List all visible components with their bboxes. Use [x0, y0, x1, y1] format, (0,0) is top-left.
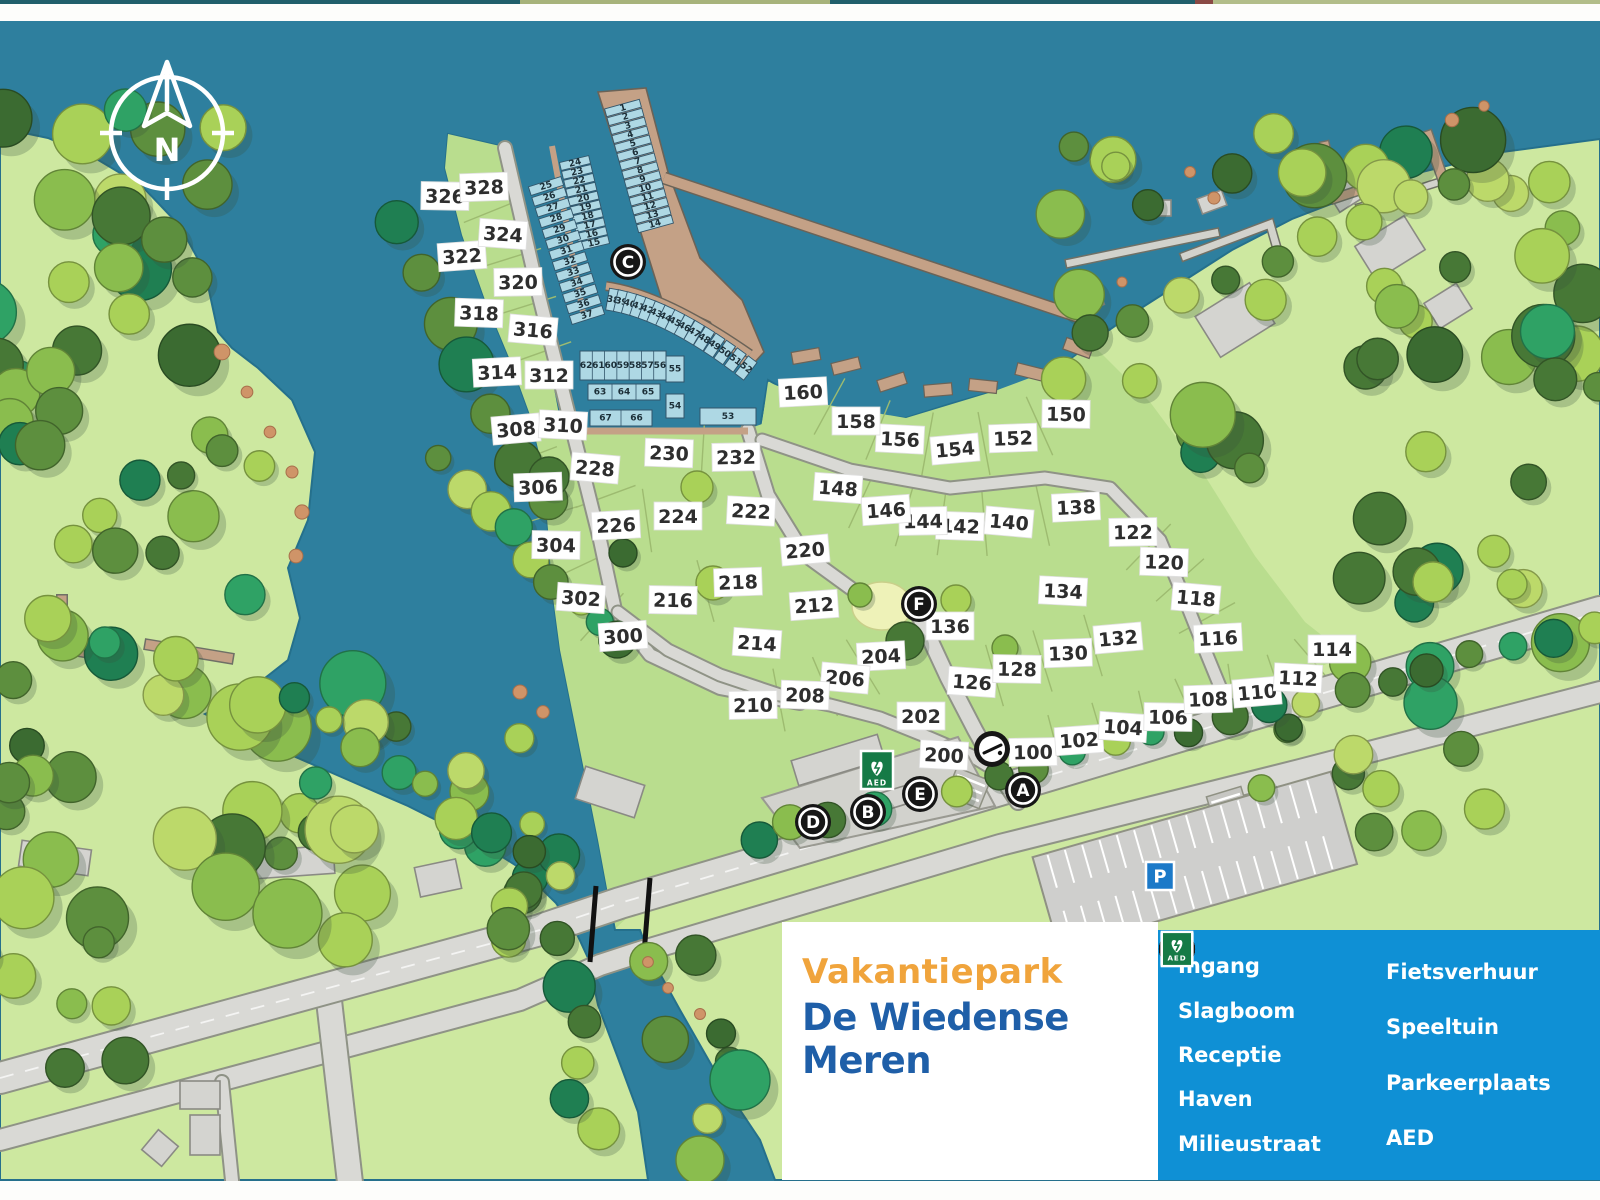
- tree: [1521, 305, 1575, 359]
- tree: [158, 324, 220, 386]
- plot-label-126: 126: [947, 666, 997, 697]
- svg-text:64: 64: [618, 388, 631, 398]
- tree: [192, 853, 259, 920]
- shore-bush: [694, 1008, 705, 1019]
- tree: [1402, 811, 1442, 851]
- tree: [435, 797, 477, 839]
- legend-label: Parkeerplaats: [1386, 1071, 1551, 1095]
- tree: [142, 217, 187, 262]
- svg-text:206: 206: [824, 666, 865, 691]
- plot-label-120: 120: [1140, 547, 1189, 577]
- svg-text:140: 140: [988, 510, 1029, 535]
- plot-label-324: 324: [478, 218, 528, 249]
- svg-text:128: 128: [997, 659, 1037, 682]
- svg-text:306: 306: [518, 476, 558, 499]
- tree: [27, 347, 75, 395]
- tree: [403, 254, 440, 291]
- svg-text:108: 108: [1188, 688, 1228, 711]
- svg-text:160: 160: [783, 381, 824, 405]
- shore-bush: [1208, 192, 1220, 204]
- tree: [1333, 552, 1385, 604]
- tree: [1355, 813, 1393, 851]
- building: [180, 1081, 220, 1109]
- svg-text:322: 322: [442, 245, 483, 270]
- svg-text:146: 146: [866, 499, 907, 524]
- svg-text:324: 324: [482, 223, 523, 248]
- tree: [1213, 154, 1252, 193]
- shore-bush: [295, 505, 309, 519]
- tree: [710, 1050, 770, 1110]
- plot-label-328: 328: [460, 172, 509, 202]
- tree: [1235, 453, 1265, 483]
- svg-text:138: 138: [1056, 496, 1097, 520]
- plot-label-128: 128: [993, 655, 1041, 684]
- plot-label-312: 312: [525, 361, 573, 389]
- tree: [941, 585, 971, 615]
- tree: [1406, 432, 1446, 472]
- p-sign: P: [1146, 862, 1174, 890]
- tree: [146, 536, 179, 569]
- svg-text:220: 220: [784, 538, 825, 563]
- svg-text:320: 320: [498, 272, 538, 295]
- marker-E: E: [902, 776, 938, 812]
- plot-label-122: 122: [1109, 518, 1157, 547]
- plot-label-212: 212: [789, 589, 839, 620]
- legend-panel: AIngangSlagboomBReceptieCHavenDMilieustr…: [1158, 930, 1600, 1180]
- tree: [25, 595, 71, 641]
- tree: [1036, 190, 1084, 238]
- tree: [1164, 278, 1200, 314]
- svg-text:308: 308: [495, 417, 536, 442]
- shore-bush: [214, 344, 230, 360]
- title-line2: De Wiedense Meren: [802, 996, 1158, 1082]
- svg-text:228: 228: [574, 456, 615, 481]
- tree: [676, 1136, 724, 1184]
- tree: [0, 662, 32, 699]
- title-line1: Vakantiepark: [802, 952, 1158, 992]
- legend-label: Milieustraat: [1178, 1132, 1321, 1156]
- tree: [448, 753, 484, 789]
- tree: [1357, 338, 1398, 379]
- compass-north-label: N: [154, 131, 181, 169]
- legend-label: Slagboom: [1178, 999, 1295, 1023]
- svg-text:150: 150: [1046, 404, 1086, 427]
- legend-item-parkeerplaats: PParkeerplaats: [1386, 1071, 1594, 1095]
- tree: [375, 201, 418, 244]
- tree: [225, 575, 265, 615]
- tree: [46, 1049, 85, 1088]
- svg-text:210: 210: [733, 695, 773, 718]
- svg-text:100: 100: [1013, 742, 1053, 765]
- shore-bush: [264, 426, 276, 438]
- svg-text:312: 312: [529, 365, 569, 387]
- legend-column-2: EFietsverhuurFSpeeltuinPParkeerplaatsAED…: [1386, 944, 1594, 1166]
- svg-text:216: 216: [653, 590, 693, 613]
- tree: [546, 862, 574, 890]
- tree: [102, 1037, 149, 1084]
- building: [190, 1115, 220, 1155]
- berth-box: 62616059585756: [580, 351, 666, 380]
- map-bottom-margin: [0, 1181, 1600, 1200]
- tree: [168, 491, 219, 542]
- plot-label-320: 320: [494, 268, 542, 297]
- svg-text:156: 156: [880, 428, 921, 452]
- plot-label-118: 118: [1171, 582, 1221, 614]
- tree: [93, 528, 138, 573]
- tree: [520, 812, 544, 836]
- shore-bush: [286, 466, 298, 478]
- svg-text:57: 57: [641, 361, 654, 371]
- legend-item-milieustraat: DMilieustraat: [1178, 1132, 1386, 1156]
- tree: [505, 724, 534, 753]
- svg-text:122: 122: [1113, 522, 1153, 545]
- tree: [330, 805, 378, 853]
- plot-label-228: 228: [570, 452, 620, 484]
- berth-box: 6766: [590, 410, 652, 426]
- plot-label-226: 226: [591, 510, 640, 540]
- svg-text:304: 304: [536, 535, 576, 558]
- tree: [1133, 190, 1164, 221]
- tree: [1353, 492, 1405, 544]
- svg-text:214: 214: [736, 632, 777, 657]
- svg-text:224: 224: [658, 506, 698, 528]
- legend-item-receptie: BReceptie: [1178, 1043, 1386, 1067]
- legend-item-speeltuin: FSpeeltuin: [1386, 1015, 1594, 1039]
- tree: [83, 927, 114, 958]
- plot-label-210: 210: [729, 691, 777, 720]
- svg-text:302: 302: [560, 587, 601, 612]
- svg-text:152: 152: [993, 427, 1033, 450]
- svg-text:C: C: [622, 253, 634, 273]
- svg-text:AED: AED: [867, 779, 887, 788]
- svg-text:104: 104: [1102, 716, 1143, 741]
- marker-D: D: [795, 804, 831, 840]
- tree: [341, 728, 380, 767]
- svg-text:D: D: [806, 813, 820, 833]
- tree: [95, 243, 143, 291]
- tree: [426, 445, 451, 470]
- plot-label-146: 146: [861, 494, 911, 525]
- plot-label-152: 152: [989, 423, 1038, 453]
- plot-label-214: 214: [732, 627, 782, 658]
- tree: [1123, 364, 1157, 398]
- plot-label-138: 138: [1051, 492, 1100, 522]
- plot-label-302: 302: [556, 582, 606, 613]
- shore-bush: [1117, 277, 1127, 287]
- plot-label-104: 104: [1098, 711, 1148, 742]
- tree: [1334, 735, 1372, 773]
- svg-text:218: 218: [718, 571, 758, 594]
- svg-text:63: 63: [594, 388, 607, 398]
- tree: [1335, 673, 1370, 708]
- tree: [1059, 132, 1088, 161]
- shore-bush: [1185, 167, 1196, 178]
- svg-text:326: 326: [425, 186, 465, 209]
- berth-box: 54: [666, 394, 684, 418]
- plot-label-200: 200: [919, 740, 968, 770]
- tree: [49, 262, 90, 303]
- plot-label-216: 216: [649, 586, 697, 615]
- tree: [244, 451, 275, 482]
- tree: [495, 509, 532, 546]
- small-dock: [924, 383, 953, 397]
- shore-bush: [241, 386, 253, 398]
- svg-text:314: 314: [477, 361, 518, 385]
- tree: [1212, 266, 1240, 294]
- plot-label-218: 218: [714, 567, 763, 597]
- plot-label-108: 108: [1184, 684, 1233, 714]
- tree: [568, 1005, 600, 1037]
- tree: [34, 170, 94, 230]
- marker-F: F: [901, 586, 937, 622]
- small-dock: [968, 379, 997, 394]
- marker-B: B: [850, 794, 886, 830]
- shore-bush: [1479, 101, 1489, 111]
- tree: [1478, 535, 1510, 567]
- tree: [1278, 149, 1325, 196]
- svg-text:130: 130: [1048, 642, 1088, 665]
- tree: [676, 935, 716, 975]
- tree: [92, 987, 130, 1025]
- tree: [513, 836, 545, 868]
- svg-text:53: 53: [722, 412, 735, 422]
- plot-label-202: 202: [897, 702, 945, 730]
- vacation-park-map: { "title": {"line1": "Vakantiepark", "li…: [0, 0, 1600, 1200]
- tree: [550, 1080, 588, 1118]
- tree: [1363, 771, 1399, 807]
- marker-A: A: [1005, 772, 1041, 808]
- legend-label: Speeltuin: [1386, 1015, 1499, 1039]
- plot-label-308: 308: [491, 413, 541, 445]
- plot-label-220: 220: [780, 534, 830, 566]
- svg-text:116: 116: [1198, 627, 1239, 651]
- svg-text:208: 208: [785, 684, 825, 707]
- tree: [693, 1104, 722, 1133]
- svg-text:226: 226: [596, 514, 637, 538]
- tree: [1456, 641, 1483, 668]
- legend-item-fietsverhuur: EFietsverhuur: [1386, 960, 1594, 984]
- tree: [472, 813, 512, 853]
- plot-label-100: 100: [1009, 738, 1057, 767]
- tree: [230, 677, 286, 733]
- svg-text:202: 202: [901, 706, 941, 728]
- berth-box: 636465: [588, 384, 660, 400]
- plot-label-230: 230: [645, 438, 694, 468]
- tree: [109, 294, 149, 334]
- svg-text:316: 316: [512, 318, 553, 343]
- tree: [1438, 169, 1469, 200]
- plot-label-148: 148: [813, 472, 863, 503]
- svg-text:62: 62: [580, 361, 593, 371]
- legend-label: Fietsverhuur: [1386, 960, 1538, 984]
- tree: [1254, 114, 1294, 154]
- tree: [1072, 315, 1108, 351]
- svg-text:204: 204: [861, 645, 902, 669]
- tree: [543, 960, 595, 1012]
- svg-text:328: 328: [464, 176, 504, 199]
- svg-text:318: 318: [459, 302, 499, 325]
- svg-text:126: 126: [951, 671, 992, 696]
- svg-text:230: 230: [649, 442, 689, 465]
- plot-label-112: 112: [1273, 663, 1322, 693]
- plot-label-136: 136: [926, 612, 974, 640]
- svg-text:E: E: [914, 785, 926, 805]
- tree: [15, 421, 64, 470]
- tree: [1170, 382, 1235, 447]
- map-top-margin: [0, 4, 1600, 21]
- tree: [1464, 789, 1504, 829]
- plot-label-134: 134: [1038, 576, 1087, 606]
- tree: [1529, 161, 1570, 202]
- svg-text:200: 200: [924, 744, 965, 768]
- tree: [1497, 569, 1527, 599]
- map-title-box: Vakantiepark De Wiedense Meren: [782, 922, 1158, 1180]
- svg-text:310: 310: [543, 414, 584, 438]
- svg-text:232: 232: [716, 447, 756, 470]
- svg-text:300: 300: [603, 625, 644, 650]
- aed-sign: AED: [861, 751, 893, 789]
- tree: [848, 583, 872, 607]
- tree: [681, 471, 713, 503]
- tree: [487, 908, 529, 950]
- legend-item-ingang: AIngang: [1178, 954, 1386, 978]
- plot-label-150: 150: [1042, 400, 1090, 429]
- tree: [1410, 654, 1443, 687]
- svg-text:61: 61: [592, 361, 605, 371]
- svg-text:56: 56: [654, 361, 667, 371]
- shore-bush: [643, 957, 654, 968]
- plot-label-154: 154: [930, 433, 980, 465]
- plot-label-222: 222: [726, 496, 775, 526]
- tree: [1394, 180, 1428, 214]
- berth-box: 55: [666, 356, 684, 382]
- marker-C: C: [610, 244, 646, 280]
- tree: [83, 498, 117, 532]
- plot-label-130: 130: [1044, 638, 1093, 668]
- tree: [0, 867, 54, 929]
- tree: [741, 822, 777, 858]
- tree: [609, 539, 637, 567]
- tree: [642, 1016, 688, 1062]
- plot-label-310: 310: [538, 410, 587, 440]
- plot-label-304: 304: [532, 531, 580, 560]
- tree: [1248, 775, 1275, 802]
- plot-label-140: 140: [984, 506, 1034, 538]
- shore-bush: [663, 983, 674, 994]
- tree: [562, 1047, 594, 1079]
- tree: [1116, 305, 1148, 337]
- plot-label-224: 224: [654, 502, 702, 530]
- tree: [382, 756, 416, 790]
- tree: [1292, 690, 1319, 717]
- plot-label-158: 158: [832, 407, 880, 435]
- svg-text:A: A: [1016, 781, 1030, 801]
- svg-text:134: 134: [1043, 580, 1084, 604]
- svg-text:F: F: [913, 595, 925, 615]
- tree: [1375, 285, 1418, 328]
- tree: [253, 879, 322, 948]
- tree: [1054, 269, 1104, 319]
- tree: [300, 767, 332, 799]
- legend-label: AED: [1386, 1126, 1434, 1150]
- tree: [55, 525, 93, 563]
- tree: [1413, 562, 1453, 602]
- tree: [1298, 217, 1337, 256]
- plot-label-316: 316: [508, 314, 558, 346]
- plot-label-318: 318: [455, 298, 504, 328]
- plot-label-314: 314: [472, 357, 521, 387]
- tree: [412, 771, 437, 796]
- legend-label: Haven: [1178, 1087, 1253, 1111]
- plot-label-116: 116: [1193, 623, 1242, 653]
- svg-text:102: 102: [1059, 729, 1100, 754]
- svg-text:120: 120: [1144, 551, 1184, 574]
- tree: [942, 776, 973, 807]
- tree: [707, 1019, 736, 1048]
- svg-text:55: 55: [669, 365, 682, 375]
- svg-text:112: 112: [1278, 667, 1319, 691]
- plot-label-132: 132: [1093, 622, 1143, 654]
- shore-bush: [1445, 113, 1458, 126]
- tree: [1534, 358, 1577, 401]
- legend-item-haven: CHaven: [1178, 1087, 1386, 1111]
- shore-bush: [537, 706, 550, 719]
- svg-text:136: 136: [930, 616, 970, 638]
- tree: [1444, 731, 1479, 766]
- svg-text:58: 58: [629, 361, 642, 371]
- tree: [120, 460, 160, 500]
- plot-label-114: 114: [1308, 635, 1356, 663]
- legend-item-aed: AEDAED: [1386, 1126, 1594, 1150]
- svg-text:132: 132: [1097, 626, 1138, 651]
- plot-label-232: 232: [712, 443, 760, 472]
- marker-slagboom: [974, 731, 1010, 767]
- shore-bush: [289, 549, 303, 563]
- tree: [1262, 246, 1293, 277]
- svg-text:154: 154: [934, 437, 975, 462]
- svg-text:66: 66: [630, 414, 643, 424]
- svg-text:118: 118: [1175, 586, 1216, 611]
- svg-text:110: 110: [1236, 680, 1277, 705]
- shore-bush: [513, 685, 527, 699]
- svg-text:148: 148: [817, 477, 858, 502]
- tree: [540, 921, 574, 955]
- tree: [316, 707, 342, 733]
- plot-label-306: 306: [514, 472, 563, 502]
- svg-text:B: B: [862, 803, 875, 823]
- berth-box: 53: [700, 408, 756, 425]
- tree: [1515, 229, 1569, 283]
- tree: [1499, 632, 1526, 659]
- svg-text:114: 114: [1312, 639, 1352, 661]
- tree: [1245, 279, 1286, 320]
- plot-label-300: 300: [598, 620, 648, 651]
- legend-column-1: AIngangSlagboomBReceptieCHavenDMilieustr…: [1178, 944, 1386, 1166]
- svg-text:P: P: [1153, 867, 1166, 888]
- plot-label-102: 102: [1054, 724, 1104, 755]
- tree: [57, 989, 87, 1019]
- svg-text:158: 158: [836, 411, 876, 433]
- svg-text:60: 60: [604, 361, 617, 371]
- svg-text:65: 65: [642, 388, 655, 398]
- tree: [1102, 152, 1130, 180]
- svg-text:222: 222: [731, 500, 772, 524]
- svg-text:106: 106: [1148, 707, 1188, 730]
- svg-text:AED: AED: [1167, 953, 1186, 962]
- legend-item-slagboom: Slagboom: [1178, 999, 1386, 1023]
- tree: [206, 435, 238, 467]
- plot-label-156: 156: [875, 424, 924, 454]
